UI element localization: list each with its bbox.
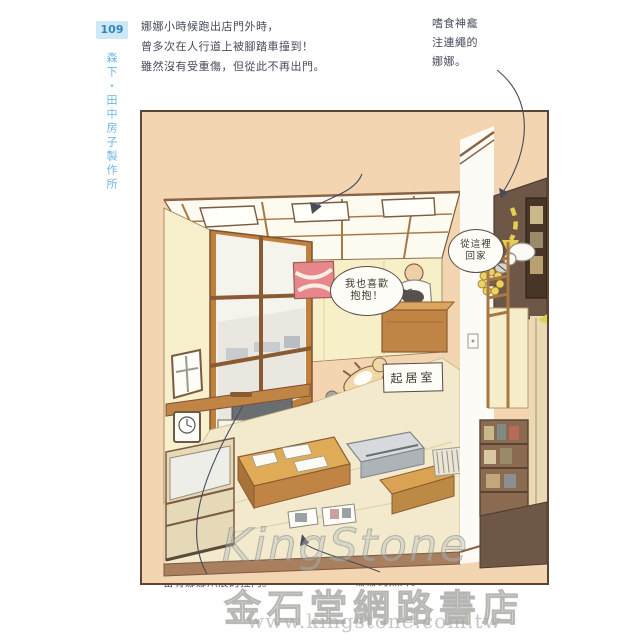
nana-rope-line-1: 嗜食神龕 [432, 14, 478, 33]
grandpa-speech-line-1: 我也喜歡 [345, 279, 389, 291]
lower-shelf-unit [480, 420, 528, 516]
sliding-door [166, 438, 234, 560]
watermark-url: www.kingstone.com.tw [247, 609, 502, 633]
room-label: 起居室 [383, 362, 444, 393]
wall-clock [174, 412, 200, 442]
book-title-vertical: 森下・田中房子製作所 [103, 52, 119, 242]
nana-rope-line-3: 娜娜。 [432, 52, 478, 71]
intro-line-2: 曾多次在人行道上被腳踏車撞到！ [141, 37, 325, 57]
cat-return-bubble: 從這裡 回家 [448, 229, 504, 273]
altar-table [382, 302, 454, 352]
grandpa-speech-bubble: 我也喜歡 抱抱！ [330, 266, 404, 316]
page-number: 109 [96, 21, 128, 39]
festival-photo [293, 261, 334, 298]
intro-line-3: 雖然沒有受重傷，但從此不再出門。 [141, 57, 325, 77]
switch-plate [468, 334, 478, 348]
cat-return-line-2: 回家 [465, 251, 486, 263]
intro-caption: 娜娜小時候跑出店門外時， 曾多次在人行道上被腳踏車撞到！ 雖然沒有受重傷，但從此… [141, 17, 325, 77]
book-page: 109 森下・田中房子製作所 娜娜小時候跑出店門外時， 曾多次在人行道上被腳踏車… [0, 0, 640, 640]
cat-return-line-1: 從這裡 [460, 239, 492, 251]
nana-rope-caption: 嗜食神龕 注連繩的 娜娜。 [432, 14, 478, 71]
grandpa-speech-line-2: 抱抱！ [351, 291, 384, 303]
illustration-panel [140, 110, 549, 585]
intro-line-1: 娜娜小時候跑出店門外時， [141, 17, 325, 37]
room-illustration [142, 112, 547, 583]
nana-rope-line-2: 注連繩的 [432, 33, 478, 52]
